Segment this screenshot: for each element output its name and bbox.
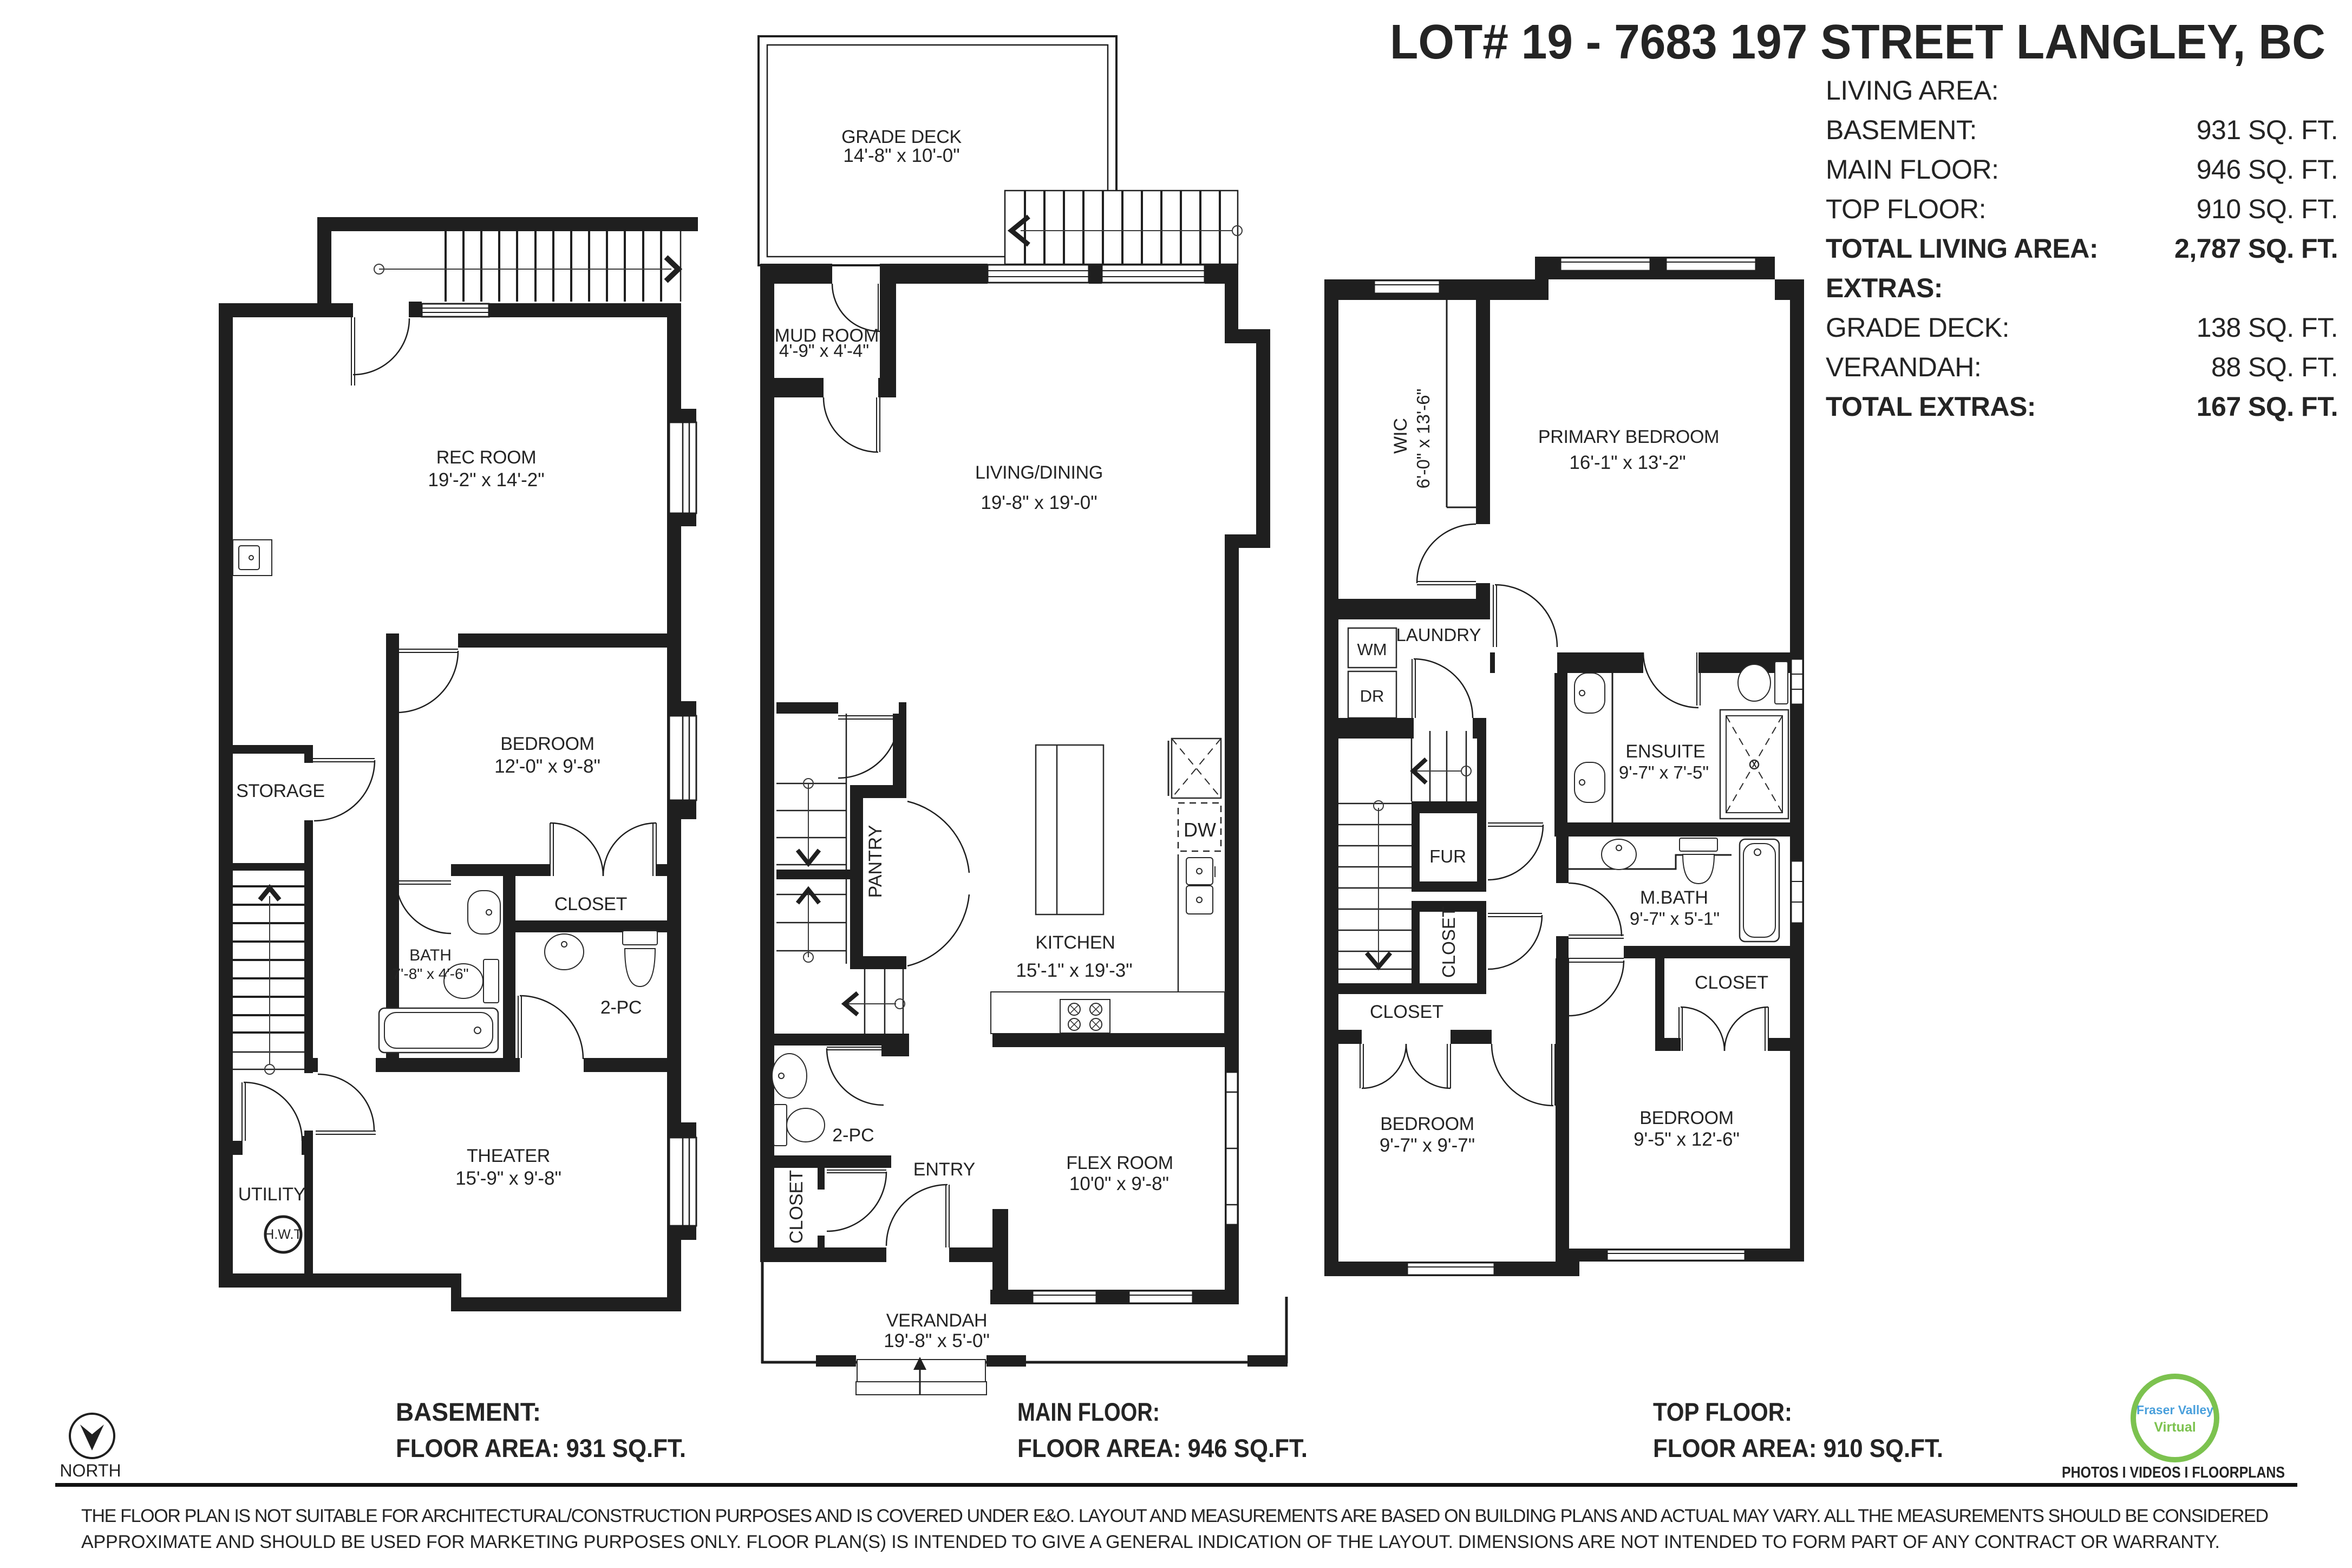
- svg-text:FLEX ROOM: FLEX ROOM: [1066, 1153, 1173, 1173]
- svg-text:12'-0" x 9'-8": 12'-0" x 9'-8": [494, 756, 600, 777]
- svg-text:CLOSET: CLOSET: [1439, 906, 1459, 978]
- svg-text:7'-8" x 4'-6": 7'-8" x 4'-6": [392, 965, 468, 982]
- svg-text:CLOSET: CLOSET: [1370, 1002, 1443, 1022]
- svg-text:LAUNDRY: LAUNDRY: [1396, 625, 1481, 645]
- svg-text:15'-9" x 9'-8": 15'-9" x 9'-8": [455, 1168, 561, 1189]
- svg-text:REC ROOM: REC ROOM: [436, 447, 537, 468]
- svg-text:ENTRY: ENTRY: [913, 1159, 976, 1180]
- svg-text:FLOOR AREA: 931 SQ.FT.: FLOOR AREA: 931 SQ.FT.: [396, 1434, 686, 1462]
- svg-text:VERANDAH: VERANDAH: [886, 1310, 988, 1331]
- svg-text:4'-9" x 4'-4": 4'-9" x 4'-4": [779, 341, 869, 361]
- svg-text:TOP FLOOR:: TOP FLOOR:: [1826, 194, 1986, 224]
- svg-text:19'-8" x 19'-0": 19'-8" x 19'-0": [981, 492, 1097, 513]
- svg-text:6'-0" x 13'-6": 6'-0" x 13'-6": [1413, 389, 1433, 489]
- svg-text:14'-8" x 10'-0": 14'-8" x 10'-0": [843, 145, 959, 166]
- svg-text:910 SQ. FT.: 910 SQ. FT.: [2197, 194, 2338, 224]
- svg-text:931 SQ. FT.: 931 SQ. FT.: [2197, 115, 2338, 145]
- svg-text:KITCHEN: KITCHEN: [1035, 932, 1115, 953]
- svg-text:9'-5" x 12'-6": 9'-5" x 12'-6": [1634, 1129, 1740, 1150]
- svg-text:TOTAL EXTRAS:: TOTAL EXTRAS:: [1826, 391, 2036, 422]
- svg-text:10'0" x 9'-8": 10'0" x 9'-8": [1069, 1173, 1169, 1194]
- svg-text:CLOSET: CLOSET: [554, 894, 627, 914]
- svg-text:APPROXIMATE AND SHOULD BE USED: APPROXIMATE AND SHOULD BE USED FOR MARKE…: [81, 1532, 2220, 1552]
- svg-text:DW: DW: [1184, 819, 1216, 841]
- svg-text:FLOOR AREA: 946 SQ.FT.: FLOOR AREA: 946 SQ.FT.: [1017, 1434, 1308, 1462]
- svg-text:19'-8" x 5'-0": 19'-8" x 5'-0": [884, 1330, 990, 1351]
- svg-text:PHOTOS I VIDEOS I FLOORPLANS: PHOTOS I VIDEOS I FLOORPLANS: [2062, 1464, 2285, 1481]
- svg-text:MAIN FLOOR:: MAIN FLOOR:: [1017, 1397, 1160, 1426]
- svg-text:BASEMENT:: BASEMENT:: [1826, 115, 1977, 145]
- svg-text:FLOOR AREA: 910 SQ.FT.: FLOOR AREA: 910 SQ.FT.: [1653, 1434, 1943, 1462]
- svg-text:167 SQ. FT.: 167 SQ. FT.: [2197, 391, 2338, 422]
- svg-text:VERANDAH:: VERANDAH:: [1826, 352, 1981, 382]
- svg-text:2-PC: 2-PC: [832, 1125, 874, 1146]
- svg-text:BATH: BATH: [409, 946, 452, 964]
- svg-text:TOTAL LIVING AREA:: TOTAL LIVING AREA:: [1826, 233, 2098, 264]
- svg-text:PRIMARY BEDROOM: PRIMARY BEDROOM: [1538, 427, 1719, 447]
- svg-text:GRADE DECK:: GRADE DECK:: [1826, 312, 2009, 343]
- svg-text:UTILITY: UTILITY: [238, 1184, 305, 1205]
- svg-text:88 SQ. FT.: 88 SQ. FT.: [2211, 352, 2338, 382]
- svg-text:MAIN FLOOR:: MAIN FLOOR:: [1826, 154, 1999, 185]
- svg-text:946 SQ. FT.: 946 SQ. FT.: [2197, 154, 2338, 185]
- svg-text:DR: DR: [1360, 687, 1384, 705]
- svg-text:STORAGE: STORAGE: [236, 781, 325, 801]
- svg-text:Fraser Valley: Fraser Valley: [2137, 1403, 2213, 1417]
- svg-text:WIC: WIC: [1390, 418, 1411, 454]
- svg-text:138 SQ. FT.: 138 SQ. FT.: [2197, 312, 2338, 343]
- svg-text:M.BATH: M.BATH: [1640, 887, 1708, 908]
- svg-text:BEDROOM: BEDROOM: [1639, 1108, 1734, 1128]
- svg-text:LIVING/DINING: LIVING/DINING: [975, 462, 1103, 483]
- svg-text:BEDROOM: BEDROOM: [1380, 1114, 1474, 1134]
- svg-text:19'-2" x 14'-2": 19'-2" x 14'-2": [428, 469, 544, 491]
- svg-text:THE FLOOR PLAN IS NOT SUITABLE: THE FLOOR PLAN IS NOT SUITABLE FOR ARCHI…: [81, 1506, 2269, 1526]
- svg-text:CLOSET: CLOSET: [1695, 972, 1768, 993]
- svg-text:BEDROOM: BEDROOM: [500, 734, 594, 754]
- svg-text:Virtual: Virtual: [2154, 1420, 2196, 1435]
- svg-text:CLOSET: CLOSET: [786, 1170, 807, 1244]
- svg-text:NORTH: NORTH: [60, 1461, 121, 1480]
- svg-text:THEATER: THEATER: [467, 1146, 550, 1166]
- svg-text:GRADE DECK: GRADE DECK: [841, 127, 962, 147]
- svg-text:PANTRY: PANTRY: [865, 825, 886, 898]
- svg-text:EXTRAS:: EXTRAS:: [1826, 273, 1943, 303]
- svg-text:9'-7" x 5'-1": 9'-7" x 5'-1": [1630, 909, 1720, 929]
- svg-text:WM: WM: [1357, 640, 1387, 659]
- svg-text:TOP FLOOR:: TOP FLOOR:: [1653, 1397, 1792, 1426]
- svg-text:16'-1" x 13'-2": 16'-1" x 13'-2": [1569, 452, 1685, 473]
- svg-text:2-PC: 2-PC: [600, 997, 642, 1018]
- svg-text:FUR: FUR: [1429, 846, 1466, 866]
- svg-text:9'-7" x 7'-5": 9'-7" x 7'-5": [1619, 762, 1709, 782]
- svg-text:H.W.T: H.W.T: [264, 1227, 302, 1242]
- svg-text:LOT# 19 - 7683 197 STREET LANG: LOT# 19 - 7683 197 STREET LANGLEY, BC: [1390, 15, 2325, 69]
- svg-text:ENSUITE: ENSUITE: [1625, 741, 1705, 762]
- svg-text:LIVING AREA:: LIVING AREA:: [1826, 75, 1998, 106]
- svg-text:9'-7" x 9'-7": 9'-7" x 9'-7": [1380, 1135, 1475, 1156]
- svg-text:2,787 SQ. FT.: 2,787 SQ. FT.: [2174, 233, 2338, 264]
- svg-text:15'-1" x 19'-3": 15'-1" x 19'-3": [1016, 960, 1132, 981]
- svg-text:BASEMENT:: BASEMENT:: [396, 1397, 541, 1426]
